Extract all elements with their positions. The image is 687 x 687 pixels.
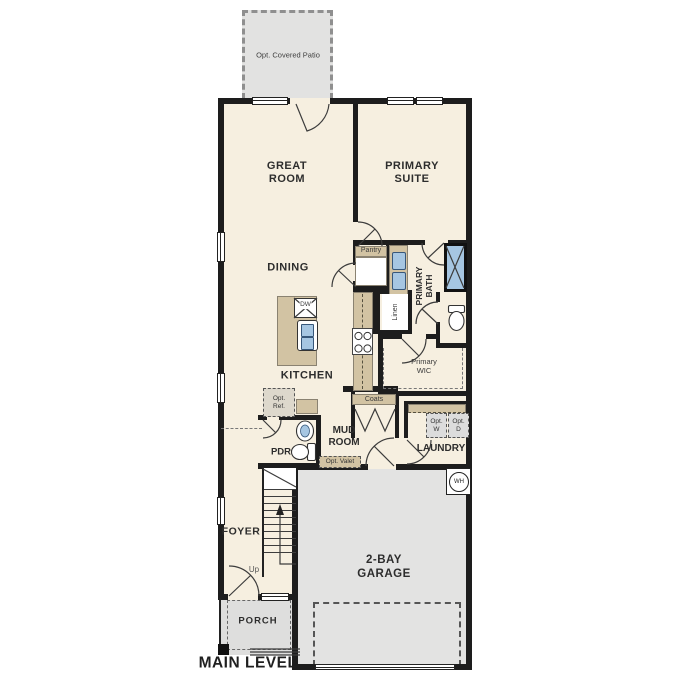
great-room-label: GREAT ROOM <box>267 160 307 186</box>
stairs-up-label: Up <box>249 565 259 575</box>
pantry-door-swing <box>332 263 356 287</box>
coats-label: Coats <box>365 396 383 404</box>
patio-label: Opt. Covered Patio <box>256 51 320 60</box>
primary-wic-label: Primary WIC <box>411 357 437 375</box>
primary-suite-label: PRIMARY SUITE <box>385 160 439 186</box>
primary-bath-label: PRIMARY BATH <box>414 267 434 306</box>
stairs-landing-break <box>263 469 296 487</box>
pdr-toilet <box>292 444 316 461</box>
linen-label: Linen <box>392 303 400 320</box>
dishwasher-label: DW <box>299 301 312 309</box>
primary-bath-door-swing <box>422 243 444 265</box>
primary-wc-toilet <box>449 306 465 331</box>
shower-x-mark <box>446 246 464 288</box>
kitchen-label: KITCHEN <box>281 369 333 382</box>
foyer-label: FOYER <box>222 526 261 539</box>
porch-label: PORCH <box>238 615 277 626</box>
pdr-door-swing <box>263 420 281 438</box>
pantry-label: Pantry <box>361 247 381 255</box>
mud-room-label: MUD ROOM <box>328 425 359 449</box>
stairs-up-arrow-line <box>280 513 296 564</box>
stairs-up-arrow-head <box>276 504 284 515</box>
pdr-label: PDR <box>271 446 291 457</box>
coats-bifold-doors <box>355 409 395 431</box>
pdr-sink <box>297 421 314 441</box>
main-level-label: MAIN LEVEL <box>199 655 298 674</box>
laundry-label: LAUNDRY <box>417 443 466 455</box>
garage-label: 2-BAY GARAGE <box>357 554 410 582</box>
plan-linework <box>0 0 687 687</box>
dining-label: DINING <box>267 261 309 274</box>
primary-suite-door-swing <box>358 222 382 246</box>
stove-burners <box>355 332 371 352</box>
floor-plan: Opt. Ref. Opt. W Opt. D Opt. Valet WH <box>0 0 687 687</box>
patio-door-swing <box>296 104 329 131</box>
garage-entry-door-swing <box>366 438 394 466</box>
